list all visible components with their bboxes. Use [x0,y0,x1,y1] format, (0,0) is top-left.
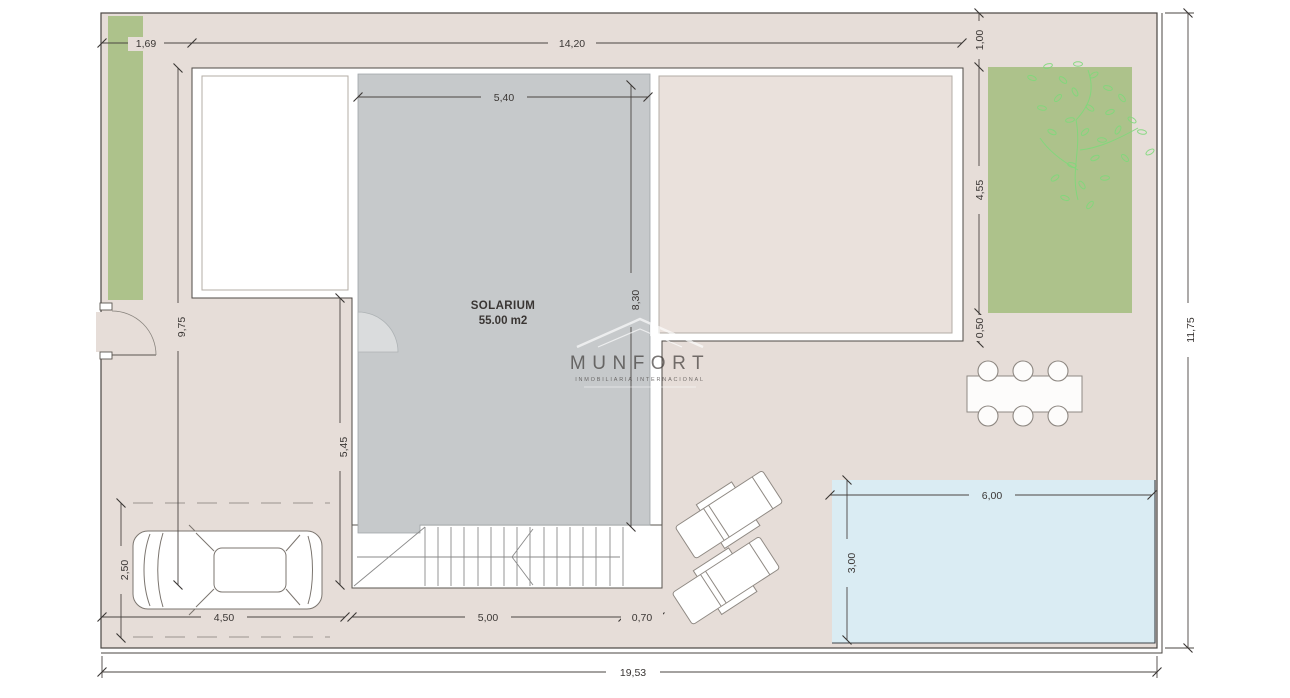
floor-plan-canvas: 1,69 14,20 5,40 1,00 4,55 0,50 8,30 9,75… [0,0,1290,698]
dim-solarium-length: 8,30 [630,290,642,311]
right-room [659,76,952,333]
dim-stairs-width: 5,00 [478,612,499,624]
dim-garden-offset-bottom: 0,50 [974,318,986,339]
chair [1013,406,1033,426]
pool [832,480,1155,643]
garden [988,67,1132,313]
dim-garden-height: 4,55 [974,180,986,201]
chair [1048,361,1068,381]
door-jamb-top [100,303,112,310]
dim-garden-offset-top: 1,00 [974,30,986,51]
dim-solarium-width: 5,40 [494,92,515,104]
chair [978,361,998,381]
chair [978,406,998,426]
dim-building-depth: 9,75 [176,317,188,338]
stairs-box [352,525,662,588]
solarium-area: 55.00 m2 [479,315,528,327]
door-opening [96,312,106,352]
green-strip [108,16,143,300]
dining-set [967,361,1082,426]
watermark-brand: MUNFORT [570,353,710,374]
dim-landing-width: 0,70 [632,612,653,624]
watermark-tagline: INMOBILIARIA INTERNACIONAL [575,377,705,383]
dim-plot-width: 19,53 [620,667,646,679]
door-jamb-bottom [100,352,112,359]
car-icon [133,525,322,615]
floor-plan: 1,69 14,20 5,40 1,00 4,55 0,50 8,30 9,75… [0,0,1290,698]
dim-parking-width: 4,50 [214,612,235,624]
dim-parking-depth: 2,50 [119,560,131,581]
chair [1048,406,1068,426]
dim-terrace-depth: 5,45 [338,437,350,458]
dim-pool-depth: 3,00 [846,553,858,574]
solarium-name: SOLARIUM [471,300,536,312]
dim-pool-width: 6,00 [982,490,1003,502]
dim-plot-depth: 11,75 [1185,317,1197,343]
dim-building-width: 14,20 [559,38,585,50]
dim-strip-width: 1,69 [136,38,157,50]
chair [1013,361,1033,381]
